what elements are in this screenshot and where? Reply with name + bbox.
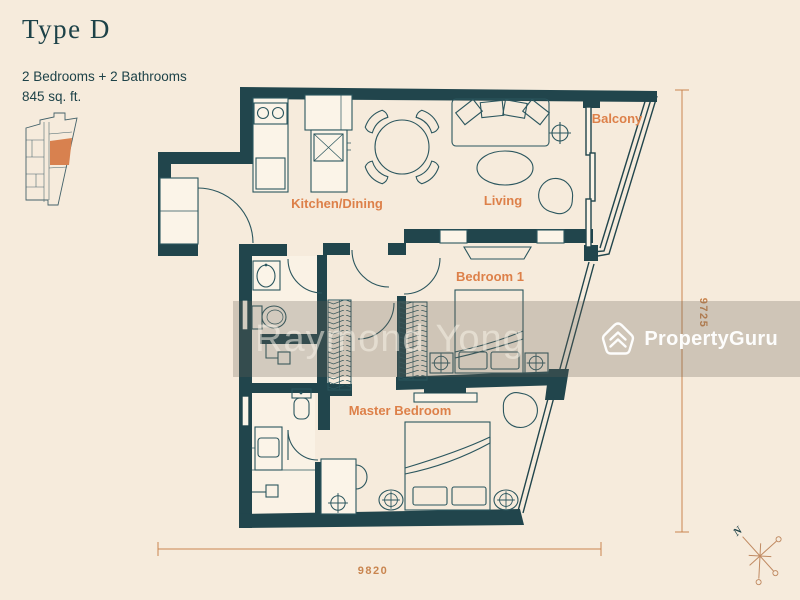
sofa — [452, 99, 549, 146]
entry-door-arc — [198, 188, 253, 243]
bathroom2-window — [242, 396, 249, 426]
kitchen-counter — [253, 98, 288, 192]
master-window — [518, 395, 554, 513]
armchair — [495, 385, 544, 435]
bedroom1-door-arc — [404, 258, 440, 294]
tv — [467, 232, 530, 242]
propertyguru-logo-icon — [600, 321, 636, 357]
unit-locator-map — [26, 113, 77, 205]
kitchen-furniture — [253, 95, 352, 192]
compass-rose-icon: N — [718, 509, 797, 589]
width-dimension: 9820 — [158, 542, 601, 577]
master-bedroom-label: Master Bedroom — [349, 403, 452, 418]
corridor-door-arc — [352, 250, 389, 287]
armchair — [532, 172, 581, 221]
living-label: Living — [484, 193, 522, 208]
agent-watermark: Raymond Yong — [255, 318, 525, 361]
entry-foyer — [160, 178, 198, 244]
brand-watermark: PropertyGuru — [600, 321, 778, 357]
width-dimension-label: 9820 — [358, 565, 388, 577]
brand-name: PropertyGuru — [644, 328, 778, 351]
balcony-label: Balcony — [592, 111, 643, 126]
desk-chair — [356, 465, 367, 489]
dining-furniture — [363, 108, 442, 187]
balcony-sliding-door — [586, 107, 591, 155]
pillow — [452, 487, 486, 505]
bedroom1-label: Bedroom 1 — [456, 269, 524, 284]
floorplan-page: Type D 2 Bedrooms + 2 Bathrooms 845 sq. … — [0, 0, 800, 600]
vanity — [255, 427, 282, 470]
coffee-table — [477, 151, 533, 185]
tv-console — [414, 393, 477, 402]
desk — [321, 459, 356, 514]
tv — [424, 385, 466, 393]
floor-lamp — [549, 122, 571, 144]
floorplan-drawing: Kitchen/Dining Living Balcony Bedroom 1 … — [0, 0, 800, 600]
pillow — [413, 487, 447, 505]
tv-console — [464, 247, 531, 259]
fridge — [305, 95, 352, 130]
kitchen-dining-label: Kitchen/Dining — [291, 196, 383, 211]
watermark-band: Raymond Yong PropertyGuru — [233, 301, 800, 377]
dining-table — [375, 120, 429, 174]
highlighted-unit — [50, 138, 72, 165]
